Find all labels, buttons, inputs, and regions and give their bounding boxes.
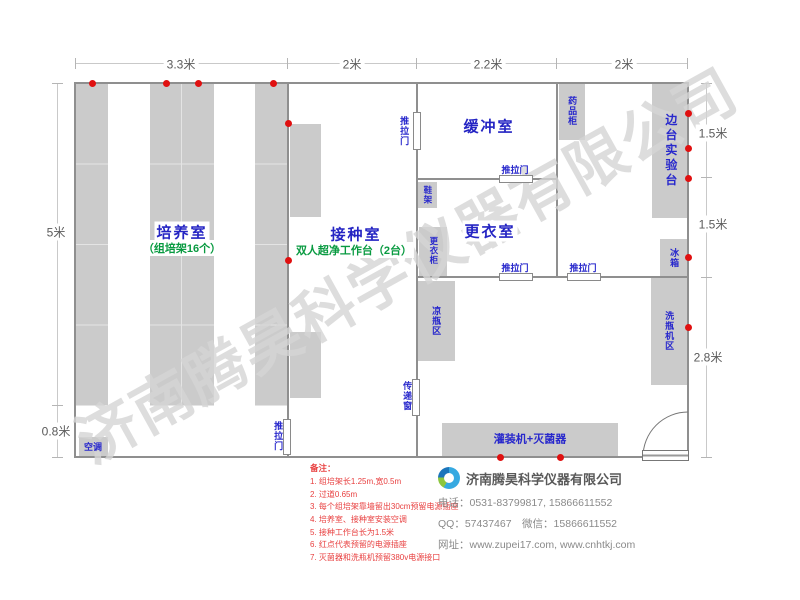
wall-left: [74, 82, 76, 458]
dim-tick: [687, 58, 688, 69]
power-outlet-dot: [685, 145, 692, 152]
air-conditioner-label: 空调: [84, 442, 102, 452]
dim-tick: [52, 405, 63, 406]
dim-right-3: 2.8米: [691, 349, 726, 366]
clean-bench: [290, 332, 321, 398]
dim-top-2: 2米: [340, 56, 365, 73]
medicine-cabinet-label: 药品柜: [567, 96, 577, 126]
wall-changing-bottom: [416, 276, 689, 278]
power-outlet-dot: [497, 454, 504, 461]
company-website: 网址：www.zupei17.com, www.cnhtkj.com: [438, 537, 635, 552]
power-outlet-dot: [163, 80, 170, 87]
filling-machine-label: 灌装机+灭菌器: [494, 434, 566, 447]
sliding-door-label: 推拉门: [273, 421, 283, 451]
wardrobe-label: 更衣柜: [428, 237, 438, 266]
power-outlet-dot: [685, 254, 692, 261]
wall-right: [687, 82, 689, 458]
sliding-door: [413, 112, 421, 150]
sliding-door: [567, 273, 601, 281]
company-name: 济南腾昊科学仪器有限公司: [466, 469, 622, 488]
sliding-door: [499, 175, 533, 183]
sliding-door: [283, 419, 291, 455]
dim-line-left: [57, 83, 58, 458]
clean-bench: [290, 124, 321, 217]
power-outlet-dot: [89, 80, 96, 87]
sliding-door-label: 推拉门: [399, 116, 409, 146]
dim-top-3: 2.2米: [471, 56, 506, 73]
power-outlet-dot: [557, 454, 564, 461]
company-phone: 电话：0531-83799817, 15866611552: [438, 495, 635, 510]
company-qq-wechat: QQ：57437467 微信：15866611552: [438, 516, 635, 531]
bottle-washer-label: 洗瓶机区: [664, 311, 674, 351]
dim-tick: [287, 58, 288, 69]
room-label-changing: 更衣室: [462, 221, 517, 242]
dim-tick: [416, 58, 417, 69]
refrigerator-label: 冰箱: [669, 248, 679, 268]
door-leaf: [642, 450, 689, 461]
room-sublabel-culture: （组培架16个）: [141, 240, 223, 256]
wall-buffer-changing: [416, 178, 558, 180]
room-sublabel-inoculation: 双人超净工作台（2台）: [294, 242, 414, 258]
dim-tick: [701, 457, 712, 458]
dim-tick: [52, 457, 63, 458]
floor-plan-page: 济南腾昊科学仪器有限公司 3.3米 2米 2.2米 2米 5米 0.8米 1.5…: [0, 0, 800, 600]
power-outlet-dot: [685, 324, 692, 331]
wall-buffer-corridor: [556, 82, 558, 278]
dim-right-1: 1.5米: [696, 125, 731, 142]
wall-culture-inoculation: [287, 82, 289, 458]
power-outlet-dot: [685, 175, 692, 182]
dim-left-1: 5米: [44, 224, 69, 241]
sliding-door-label: 推拉门: [501, 165, 528, 175]
pass-window: [412, 379, 420, 416]
company-logo-icon: [438, 467, 460, 489]
shoe-rack-label: 鞋架: [422, 186, 432, 205]
power-outlet-dot: [685, 110, 692, 117]
power-outlet-dot: [285, 257, 292, 264]
sliding-door-label: 推拉门: [569, 263, 596, 273]
bottle-cooling-label: 凉瓶区: [431, 306, 441, 336]
power-outlet-dot: [270, 80, 277, 87]
culture-rack: [255, 84, 287, 406]
note-item: 7. 灭菌器和洗瓶机预留380v电源接口: [310, 554, 460, 562]
power-outlet-dot: [195, 80, 202, 87]
dim-left-2: 0.8米: [39, 423, 74, 440]
dim-tick: [701, 277, 712, 278]
side-lab-bench-label: 边台实验台: [663, 114, 677, 189]
dim-tick: [75, 58, 76, 69]
dim-tick: [52, 83, 63, 84]
power-outlet-dot: [285, 120, 292, 127]
dim-top-1: 3.3米: [164, 56, 199, 73]
room-label-buffer: 缓冲室: [461, 116, 516, 137]
wall-bottom: [74, 456, 688, 458]
dim-tick: [701, 83, 712, 84]
company-block: 济南腾昊科学仪器有限公司 电话：0531-83799817, 158666115…: [438, 467, 635, 552]
pass-window-label: 传递窗: [402, 381, 412, 411]
dim-tick: [701, 177, 712, 178]
dim-tick: [556, 58, 557, 69]
dim-top-4: 2米: [612, 56, 637, 73]
culture-rack: [76, 84, 108, 406]
sliding-door-label: 推拉门: [501, 263, 528, 273]
dim-right-2: 1.5米: [696, 216, 731, 233]
sliding-door: [499, 273, 533, 281]
